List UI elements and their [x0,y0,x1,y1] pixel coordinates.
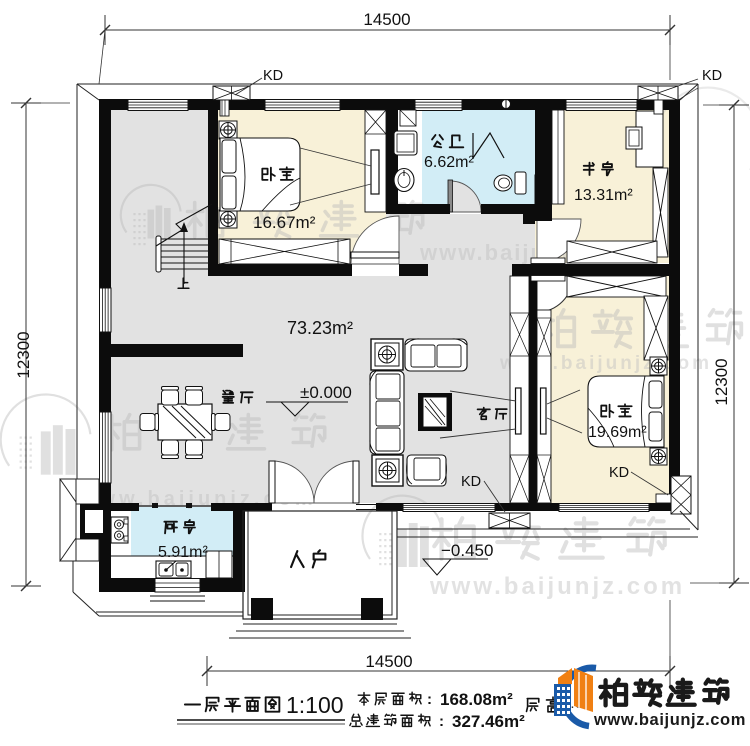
svg-text:16.67m²: 16.67m² [253,213,316,232]
svg-text:KD: KD [702,68,722,84]
svg-text:−0.450: −0.450 [441,541,493,560]
svg-text:14500: 14500 [363,10,410,29]
svg-text:www.baijunjz.com: www.baijunjz.com [429,573,685,600]
svg-text::: : [439,713,444,730]
svg-text:73.23m²: 73.23m² [287,318,353,338]
svg-text:KD: KD [461,474,481,490]
svg-text:327.46m²: 327.46m² [452,712,525,731]
svg-text:12300: 12300 [712,358,731,405]
svg-text:12300: 12300 [14,331,33,378]
svg-text:19.69m²: 19.69m² [588,424,647,441]
svg-text:168.08m²: 168.08m² [440,690,513,709]
svg-text:1:100: 1:100 [286,692,344,718]
svg-text:5.91m²: 5.91m² [158,544,208,561]
svg-text:13.31m²: 13.31m² [574,187,633,204]
svg-text:6.62m²: 6.62m² [424,154,474,171]
svg-text:www.baijunjz.com: www.baijunjz.com [593,711,746,729]
svg-text:14500: 14500 [365,652,412,671]
svg-text:KD: KD [609,465,629,481]
svg-text:±0.000: ±0.000 [300,383,352,402]
svg-text:KD: KD [263,68,283,84]
svg-text::: : [427,691,432,708]
